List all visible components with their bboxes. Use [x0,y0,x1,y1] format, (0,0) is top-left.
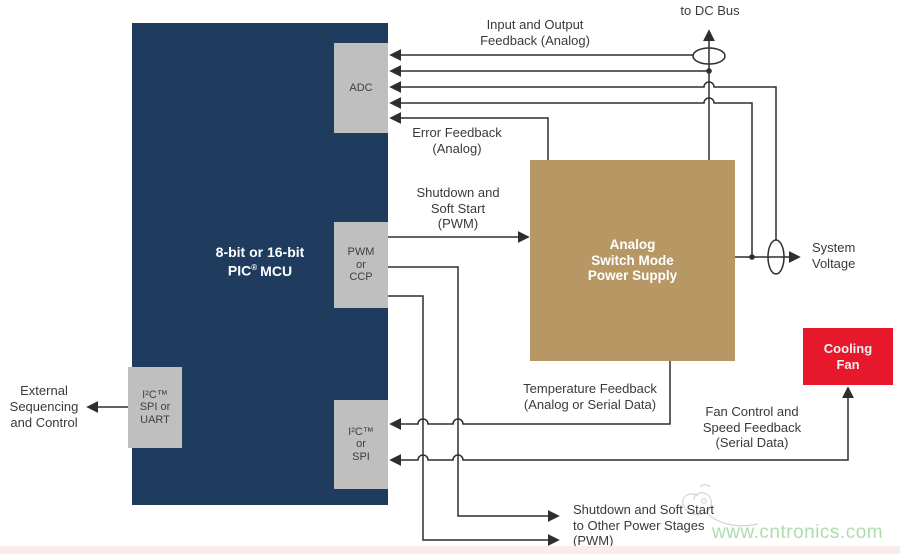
pwm-label-line2: or [356,259,366,272]
uart-label-line2: SPI or [140,401,171,414]
watermark-url: www.cntronics.com [712,522,883,544]
i2c-spi-uart-module-block: I²C™ SPI or UART [128,367,182,448]
psu-label-line3: Power Supply [588,268,677,284]
i2c-spi-module-block: I²C™ or SPI [334,400,388,489]
system-voltage-sensor-ellipse [768,240,784,274]
power-supply-block: Analog Switch Mode Power Supply [530,160,735,361]
system-voltage-junction-dot [749,254,755,260]
uart-label-line1: I²C™ [142,389,168,402]
fan-label-line2: Fan [836,357,859,373]
label-temperature-feedback: Temperature Feedback (Analog or Serial D… [500,381,680,412]
dc-bus-sensor-ellipse [693,48,725,64]
pwm-ccp-module-block: PWM or CCP [334,222,388,308]
psu-label-line1: Analog [610,237,656,253]
i2c-spi-label-line2: or [356,438,366,451]
pwm-label-line3: CCP [349,271,372,284]
label-error-feedback: Error Feedback (Analog) [397,125,517,156]
label-to-dc-bus: to DC Bus [660,3,760,19]
cooling-fan-block: Cooling Fan [803,328,893,385]
uart-label-line3: UART [140,414,170,427]
psu-label-line2: Switch Mode [591,253,674,269]
dc-bus-junction-dot [706,68,712,74]
i2c-spi-label-line3: SPI [352,451,370,464]
i2c-spi-label-line1: I²C™ [348,426,374,439]
adc-label: ADC [349,82,372,95]
fan-label-line1: Cooling [824,341,872,357]
pwm-label-line1: PWM [348,246,375,259]
label-input-output-feedback: Input and Output Feedback (Analog) [450,17,620,48]
block-diagram: 8-bit or 16-bit PIC®MCU ADC PWM or CCP I… [0,0,900,554]
adc-module-block: ADC [334,43,388,133]
label-external-sequencing: External Sequencing and Control [2,383,86,431]
label-fan-control: Fan Control and Speed Feedback (Serial D… [692,404,812,451]
label-shutdown-soft-start: Shutdown and Soft Start (PWM) [398,185,518,232]
label-system-voltage: System Voltage [812,240,882,272]
bottom-strip [0,546,900,554]
